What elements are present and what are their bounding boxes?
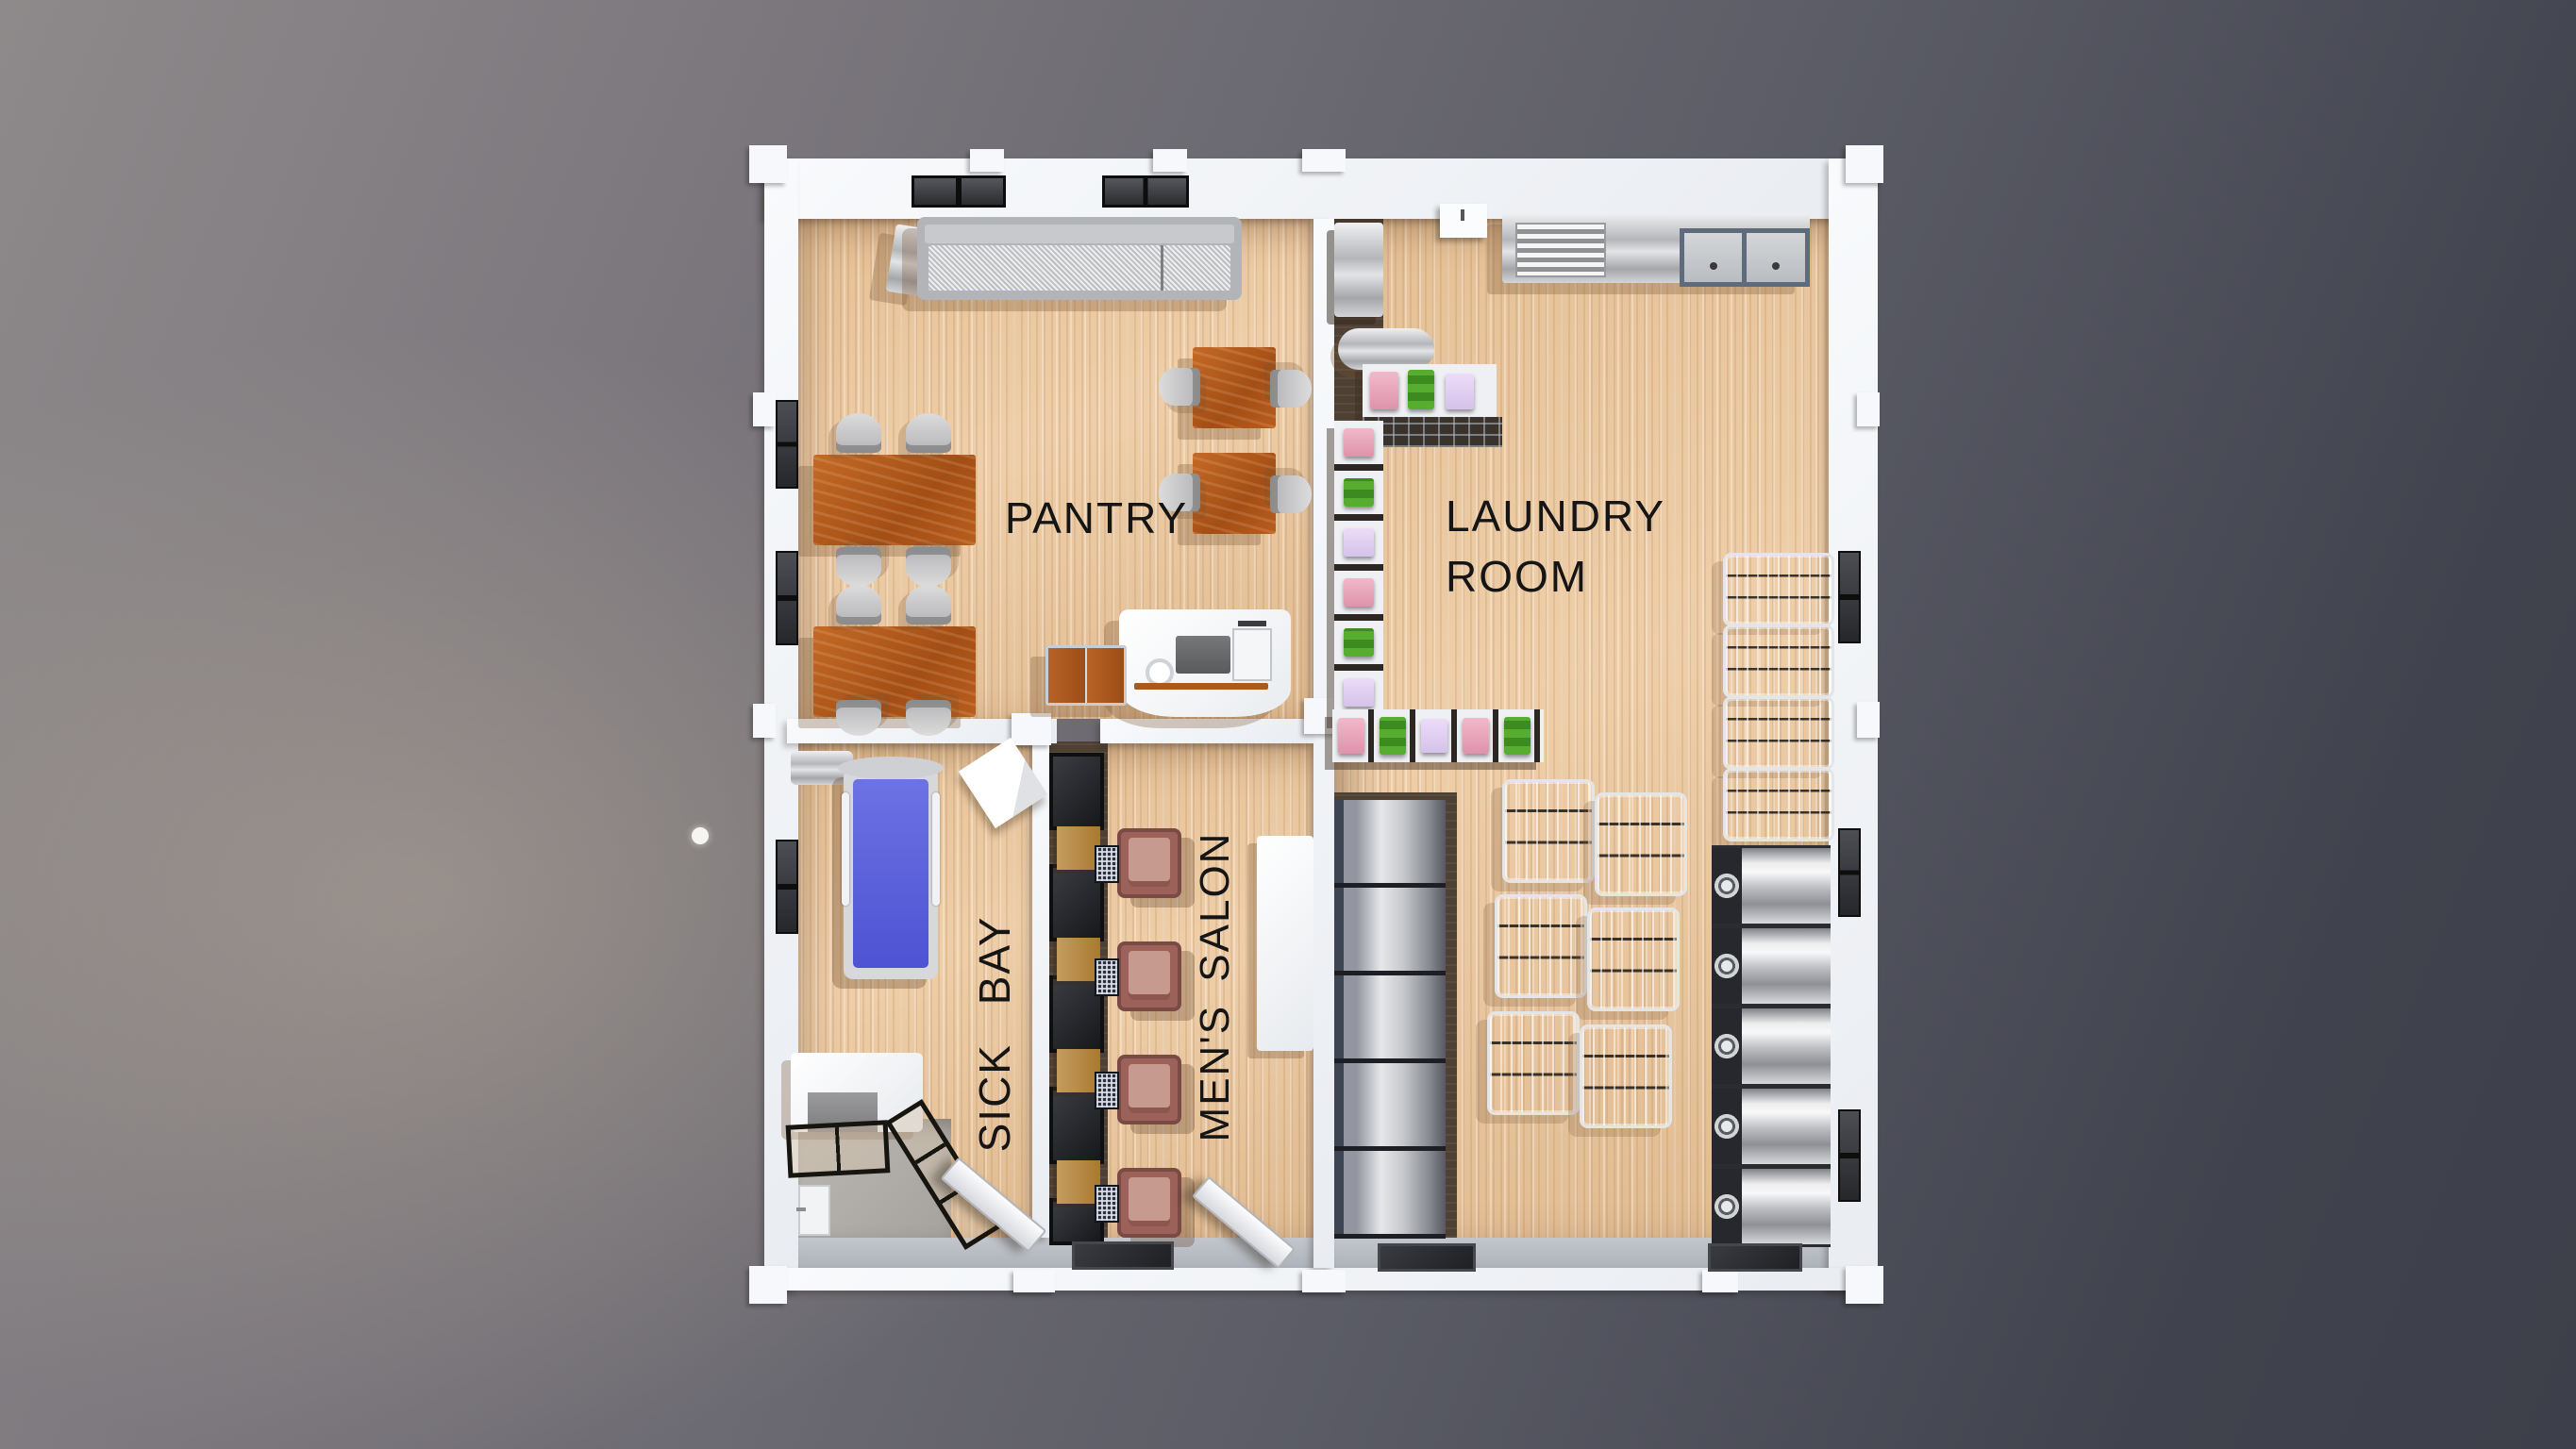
wall-divider-laundry bbox=[1313, 219, 1334, 1268]
window bbox=[1838, 551, 1861, 643]
pillar-tab bbox=[1012, 713, 1051, 745]
utility-machine bbox=[1334, 888, 1446, 975]
floor-mat bbox=[1378, 1243, 1476, 1272]
towel-shelf-vertical bbox=[1334, 421, 1383, 721]
laundry-cart bbox=[1723, 768, 1834, 841]
dining-table bbox=[813, 455, 976, 545]
pillar-tab bbox=[1302, 1270, 1346, 1292]
towel-stack-pink bbox=[1344, 578, 1374, 607]
laundry-cart bbox=[1595, 792, 1687, 896]
towel-stack-pink bbox=[1370, 372, 1398, 409]
wall-divider-pantry-b bbox=[1100, 719, 1313, 743]
pillar-tab bbox=[1302, 149, 1346, 172]
laundry-cart bbox=[1723, 696, 1834, 770]
mirror bbox=[1049, 753, 1104, 830]
pillar-tab bbox=[1846, 1266, 1883, 1304]
floor-mat bbox=[1708, 1243, 1802, 1272]
washing-machine bbox=[1712, 925, 1831, 1007]
washing-machine bbox=[1712, 1006, 1831, 1087]
chair bbox=[906, 585, 951, 625]
bed-rail bbox=[932, 792, 940, 906]
chair bbox=[836, 547, 881, 587]
towel-stack-pink bbox=[1463, 718, 1489, 754]
pillar-tab bbox=[970, 149, 1004, 172]
sink bbox=[1680, 228, 1748, 287]
laundry-cart bbox=[1723, 553, 1834, 626]
washer-door bbox=[1712, 1008, 1742, 1084]
towel-stack-lavender bbox=[1344, 528, 1374, 557]
laundry-cart bbox=[1587, 908, 1680, 1011]
laundry-cart bbox=[1580, 1024, 1672, 1128]
background-dot bbox=[692, 827, 709, 844]
counter-buttons bbox=[1238, 621, 1266, 626]
drying-rack bbox=[1515, 223, 1606, 277]
pillar-tab bbox=[1702, 1270, 1738, 1292]
chair bbox=[836, 585, 881, 625]
towel-stack-green bbox=[1344, 478, 1374, 507]
chair bbox=[906, 547, 951, 587]
towel-stack-lavender bbox=[1421, 719, 1447, 753]
towel-stack-green bbox=[1344, 628, 1374, 657]
pillar-tab bbox=[1857, 702, 1880, 738]
window bbox=[776, 400, 798, 489]
glass-partition bbox=[786, 1120, 891, 1178]
laundry-cart bbox=[1495, 894, 1587, 998]
laundry-cart bbox=[1723, 625, 1834, 698]
folding-rack-grid bbox=[1363, 417, 1502, 447]
washer-door bbox=[1712, 848, 1742, 924]
buffet-top-strip bbox=[925, 225, 1234, 243]
panel-mark bbox=[1461, 209, 1464, 221]
footrest bbox=[1095, 1185, 1119, 1223]
coffee-machine bbox=[1176, 636, 1230, 674]
room-label-laundry: LAUNDRY ROOM bbox=[1446, 494, 1665, 598]
window bbox=[1838, 828, 1861, 917]
buffet-counter bbox=[917, 217, 1242, 300]
utility-machine bbox=[1334, 1151, 1446, 1239]
pillar-tab bbox=[749, 1266, 787, 1304]
service-counter bbox=[1119, 609, 1291, 717]
bed-headboard bbox=[838, 757, 944, 779]
towel-stack-green bbox=[1504, 717, 1531, 755]
room-label-sickbay: SICK BAY bbox=[973, 916, 1016, 1153]
room-label-laundry-line1: LAUNDRY bbox=[1446, 494, 1665, 538]
salon-chair bbox=[1117, 1055, 1181, 1124]
room-label-laundry-line2: ROOM bbox=[1446, 555, 1665, 598]
buffet-surface bbox=[928, 245, 1230, 291]
towel-stack-lavender bbox=[1344, 678, 1374, 707]
washing-machine bbox=[1712, 1166, 1831, 1247]
wall-panel-box bbox=[1440, 204, 1487, 238]
pillar-tab bbox=[749, 145, 787, 183]
washer-door bbox=[1712, 1169, 1742, 1244]
washer-door bbox=[1712, 928, 1742, 1004]
salon-counter bbox=[1257, 836, 1313, 1051]
pillar-tab bbox=[1153, 149, 1187, 172]
pillar-tab bbox=[1857, 392, 1880, 426]
door-handle bbox=[796, 1207, 806, 1211]
room-label-mens-salon: MEN'S SALON bbox=[1195, 832, 1236, 1142]
window bbox=[1838, 1109, 1861, 1202]
chair bbox=[1159, 368, 1200, 406]
pillar-tab bbox=[753, 392, 776, 426]
scene-3d-floorplan: PANTRY LAUNDRY ROOM SICK BAY MEN'S SALON bbox=[0, 0, 2576, 1449]
towel-stack-green bbox=[1380, 717, 1406, 755]
pillar-tab bbox=[1846, 145, 1883, 183]
towel-shelf-bottom bbox=[1332, 709, 1544, 762]
footrest bbox=[1095, 958, 1119, 996]
sink bbox=[1742, 228, 1810, 287]
buffet-divider bbox=[1161, 245, 1163, 291]
washer-door bbox=[1712, 1089, 1742, 1164]
utility-machine bbox=[1334, 975, 1446, 1063]
towel-stack-pink bbox=[1338, 718, 1364, 754]
utility-machine bbox=[1334, 800, 1446, 888]
bed-mattress bbox=[853, 779, 928, 968]
window bbox=[912, 175, 1006, 208]
laundry-cart bbox=[1487, 1011, 1580, 1115]
pillar-tab bbox=[753, 704, 776, 738]
square-table bbox=[1193, 453, 1276, 534]
salon-chair bbox=[1117, 828, 1181, 898]
footrest bbox=[1095, 845, 1119, 883]
window bbox=[1102, 175, 1189, 208]
closet-door bbox=[798, 1185, 830, 1236]
pillar-tab bbox=[1013, 1270, 1055, 1292]
chair bbox=[836, 413, 881, 453]
washing-machine bbox=[1712, 845, 1831, 926]
chair bbox=[1270, 475, 1312, 513]
laundry-cart bbox=[1502, 779, 1595, 883]
wood-cabinet bbox=[1045, 645, 1127, 706]
floor-mat bbox=[1072, 1241, 1174, 1270]
bed-rail bbox=[842, 792, 849, 906]
hospital-bed bbox=[844, 768, 938, 979]
serving-tray bbox=[1134, 683, 1268, 690]
chair bbox=[906, 413, 951, 453]
room-label-pantry: PANTRY bbox=[1005, 496, 1188, 540]
square-table bbox=[1193, 347, 1276, 428]
window bbox=[776, 840, 798, 934]
salon-chair bbox=[1117, 941, 1181, 1011]
towel-stack-lavender bbox=[1446, 374, 1474, 409]
towel-stack-green bbox=[1408, 370, 1434, 409]
salon-chair bbox=[1117, 1168, 1181, 1238]
wall-divider-sickbay-salon bbox=[1032, 743, 1049, 1238]
towel-shelf-top bbox=[1363, 364, 1497, 417]
counter-panel bbox=[1232, 628, 1272, 681]
chair bbox=[1270, 370, 1312, 408]
towel-stack-pink bbox=[1344, 428, 1374, 457]
window bbox=[776, 551, 798, 645]
washing-machine bbox=[1712, 1086, 1831, 1167]
tall-steel-cabinet bbox=[1334, 223, 1383, 317]
footrest bbox=[1095, 1072, 1119, 1109]
utility-machine bbox=[1334, 1063, 1446, 1151]
